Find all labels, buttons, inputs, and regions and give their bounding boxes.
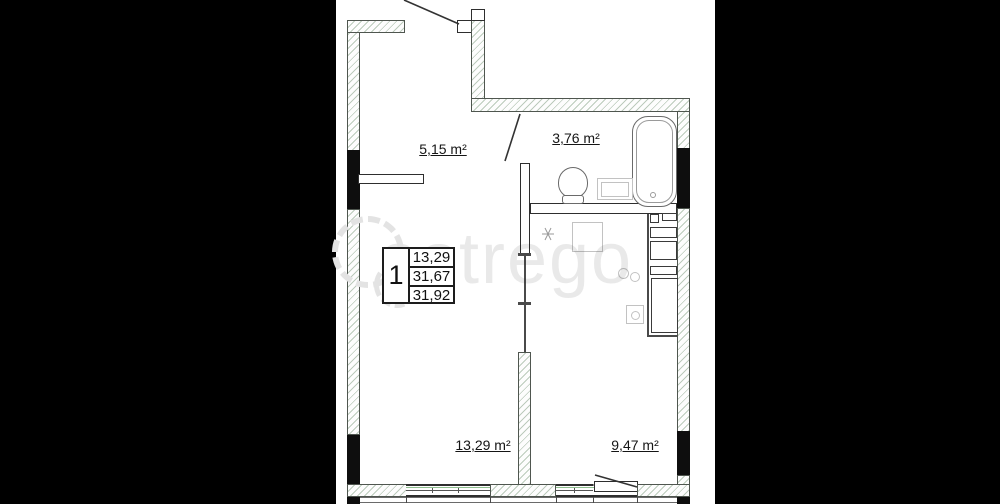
wall-bottom-hatch (637, 484, 690, 497)
kitchen-sink-bowl (630, 272, 640, 282)
kitchen-unit (662, 213, 677, 221)
balcony-slab-divider (593, 497, 594, 503)
toilet (558, 167, 588, 198)
letterbox-left (0, 0, 336, 504)
kitchen-sink-bowl (618, 268, 629, 279)
sink-basin (601, 182, 629, 197)
kitchen-appliance-burner (631, 311, 640, 320)
balcony-slab-divider (637, 497, 638, 503)
wall-bathroom-left (520, 163, 530, 256)
wall-end-tick (518, 253, 531, 256)
wall-right-hatch (677, 111, 690, 149)
letterbox-right (714, 0, 1000, 504)
kitchen-table (572, 222, 603, 252)
legend-value-full-area: 31,92 (410, 287, 453, 304)
wall-right-hatch (677, 208, 690, 432)
fridge (651, 278, 678, 333)
apartment-legend-table: 1 13,29 31,67 31,92 (382, 247, 455, 304)
balcony-slab-cap (347, 497, 360, 504)
balcony-slab (347, 497, 690, 503)
floor-plan-image: astrego (0, 0, 1000, 504)
balcony-slab-divider (406, 497, 407, 503)
legend-value-total-area: 31,67 (410, 268, 453, 287)
legend-unit-number: 1 (384, 249, 410, 302)
wall-end-tick (518, 302, 531, 305)
balcony-door-panel (594, 481, 638, 492)
wall-bottom-hatch (490, 484, 556, 497)
room-label-living: 13,29 m² (449, 437, 517, 453)
room-label-kitchen: 9,47 m² (604, 437, 666, 453)
wall-right-black (677, 431, 690, 475)
wall-top-hatch (347, 20, 405, 33)
kitchen-unit (650, 266, 677, 275)
balcony-slab-divider (490, 497, 491, 503)
wall-top-right-hatch (471, 98, 690, 112)
bathtub-drain (650, 192, 656, 198)
balcony-slab-cap (677, 497, 690, 504)
wall-hall-vertical (471, 9, 485, 102)
kitchen-counter-edge (647, 214, 649, 337)
wall-left-hatch (347, 20, 360, 151)
legend-value-living-area: 13,29 (410, 249, 453, 268)
wall-living-kitchen (518, 352, 531, 485)
window-kitchen (556, 484, 593, 497)
wall-hall-cap (471, 9, 485, 21)
kitchen-unit (650, 214, 659, 223)
wall-right-black (677, 148, 690, 208)
entrance-door-jamb (457, 20, 472, 33)
stove (650, 241, 677, 260)
balcony-slab-divider (556, 497, 557, 503)
room-label-bathroom: 3,76 m² (545, 130, 607, 146)
kitchen-unit (650, 227, 677, 238)
kitchen-counter-edge (647, 335, 678, 337)
wall-bottom-hatch (347, 484, 407, 497)
toilet-base (562, 195, 584, 204)
room-label-hallway: 5,15 m² (413, 141, 473, 157)
window-living (406, 484, 490, 497)
wardrobe (358, 174, 424, 184)
wall-left-hatch (347, 209, 360, 435)
